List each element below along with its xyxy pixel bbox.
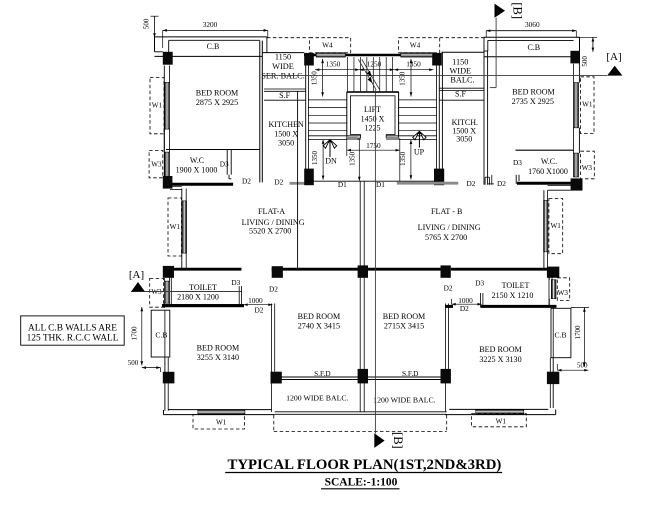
svg-text:2740 X 3415: 2740 X 3415: [298, 321, 340, 330]
svg-text:[B]: [B]: [391, 432, 405, 449]
svg-text:BED ROOM: BED ROOM: [298, 312, 341, 321]
svg-text:[A]: [A]: [129, 269, 144, 281]
svg-text:D2: D2: [460, 304, 469, 313]
svg-text:[A]: [A]: [606, 51, 621, 63]
svg-text:BED ROOM: BED ROOM: [479, 345, 522, 354]
svg-text:5765 X 2700: 5765 X 2700: [425, 233, 467, 242]
svg-text:500: 500: [581, 56, 589, 67]
svg-text:2735 X 2925: 2735 X 2925: [512, 97, 554, 106]
svg-text:DN: DN: [325, 156, 337, 165]
svg-text:BED ROOM: BED ROOM: [512, 88, 555, 97]
svg-text:W3: W3: [151, 288, 162, 296]
svg-text:3050: 3050: [456, 135, 472, 144]
svg-text:D3: D3: [513, 158, 522, 167]
svg-text:TYPICAL FLOOR PLAN(1ST,2ND&3RD: TYPICAL FLOOR PLAN(1ST,2ND&3RD): [227, 457, 501, 473]
svg-text:D2: D2: [254, 306, 263, 315]
svg-text:WIDE: WIDE: [272, 62, 294, 71]
svg-text:1350: 1350: [399, 151, 407, 166]
svg-text:BED ROOM: BED ROOM: [197, 343, 240, 352]
svg-text:W4: W4: [410, 41, 421, 50]
svg-text:3200: 3200: [203, 20, 218, 29]
svg-text:D2: D2: [444, 284, 453, 293]
svg-text:125 THK. R.C.C WALL: 125 THK. R.C.C WALL: [27, 333, 119, 343]
svg-text:1000: 1000: [248, 296, 263, 305]
svg-text:D3: D3: [220, 159, 229, 168]
svg-text:W.C.: W.C.: [541, 157, 557, 166]
svg-text:C.B: C.B: [554, 330, 566, 339]
svg-text:BED ROOM: BED ROOM: [383, 312, 426, 321]
svg-text:LIVING / DINING: LIVING / DINING: [242, 218, 305, 227]
svg-text:W3: W3: [558, 289, 569, 297]
svg-text:500: 500: [128, 359, 139, 367]
svg-text:W3: W3: [151, 161, 162, 169]
svg-text:W1: W1: [582, 101, 593, 109]
svg-text:W1: W1: [152, 102, 163, 110]
svg-text:1150: 1150: [452, 57, 468, 66]
svg-text:S.F.D: S.F.D: [402, 369, 418, 378]
svg-text:KITCHEN: KITCHEN: [269, 120, 304, 129]
svg-text:LIVING / DINING: LIVING / DINING: [418, 223, 481, 232]
svg-text:WIDE: WIDE: [449, 66, 471, 75]
svg-text:1150: 1150: [275, 53, 291, 62]
svg-text:SCALE:-1:100: SCALE:-1:100: [325, 476, 398, 488]
svg-text:W4: W4: [322, 41, 333, 50]
svg-text:2150 X 1210: 2150 X 1210: [492, 291, 534, 300]
svg-text:1900 X 1000: 1900 X 1000: [176, 166, 218, 175]
svg-text:1350: 1350: [406, 59, 421, 68]
svg-text:W.C: W.C: [190, 156, 204, 165]
svg-text:LIFT: LIFT: [364, 105, 381, 114]
svg-text:S.F.D: S.F.D: [314, 369, 330, 378]
svg-text:1200 WIDE BALC.: 1200 WIDE BALC.: [373, 395, 435, 404]
svg-text:D3: D3: [475, 279, 484, 288]
svg-text:D2: D2: [269, 284, 278, 293]
svg-text:3050: 3050: [278, 138, 294, 147]
svg-text:TOILET: TOILET: [189, 283, 217, 292]
svg-text:C.B: C.B: [155, 330, 167, 339]
svg-text:D2: D2: [242, 177, 251, 186]
svg-text:3255 X 3140: 3255 X 3140: [197, 353, 239, 362]
svg-text:D1: D1: [338, 180, 347, 189]
svg-text:5520 X 2700: 5520 X 2700: [249, 227, 291, 236]
svg-text:1200 WIDE BALC.: 1200 WIDE BALC.: [286, 394, 348, 403]
svg-text:1350: 1350: [326, 59, 341, 68]
svg-text:1500 X: 1500 X: [274, 129, 298, 138]
svg-text:FLAT - B: FLAT - B: [431, 207, 462, 216]
svg-text:1350: 1350: [399, 71, 407, 86]
svg-text:D2: D2: [274, 178, 283, 187]
svg-text:UP: UP: [414, 148, 425, 157]
svg-text:C.B: C.B: [527, 43, 540, 52]
svg-text:1225: 1225: [365, 124, 381, 133]
svg-text:D2: D2: [467, 179, 476, 188]
svg-text:W3: W3: [582, 164, 593, 172]
svg-text:BED ROOM: BED ROOM: [196, 89, 239, 98]
svg-text:3060: 3060: [525, 20, 540, 29]
svg-text:1760 X1000: 1760 X1000: [528, 167, 568, 176]
svg-text:W1: W1: [216, 419, 227, 427]
svg-text:1700: 1700: [131, 326, 139, 341]
svg-text:W1: W1: [170, 223, 181, 231]
svg-text:1700: 1700: [574, 325, 582, 340]
svg-text:1350: 1350: [311, 71, 319, 86]
svg-text:TOILET: TOILET: [502, 281, 530, 290]
svg-text:FLAT-A: FLAT-A: [258, 207, 285, 216]
svg-text:[B]: [B]: [511, 2, 525, 19]
svg-text:D1: D1: [376, 180, 385, 189]
svg-text:D3: D3: [231, 278, 240, 287]
svg-text:1450 X: 1450 X: [361, 114, 385, 123]
svg-text:BALC.: BALC.: [450, 76, 474, 85]
svg-text:D2: D2: [497, 179, 506, 188]
svg-text:1350: 1350: [348, 151, 356, 166]
svg-text:500: 500: [143, 18, 151, 29]
svg-text:C.B: C.B: [207, 42, 220, 51]
svg-text:2875 X 2925: 2875 X 2925: [196, 98, 238, 107]
svg-text:2715X 3415: 2715X 3415: [384, 321, 424, 330]
svg-text:3225 X 3130: 3225 X 3130: [479, 355, 521, 364]
svg-text:S.F: S.F: [455, 89, 466, 98]
svg-text:2180 X 1200: 2180 X 1200: [177, 292, 219, 301]
svg-text:1750: 1750: [366, 141, 381, 150]
svg-text:1350: 1350: [311, 151, 319, 166]
svg-text:W1: W1: [551, 222, 562, 230]
svg-text:S.F: S.F: [279, 91, 290, 100]
svg-text:500: 500: [577, 362, 588, 370]
svg-text:ALL C.B WALLS ARE: ALL C.B WALLS ARE: [28, 323, 117, 333]
svg-text:1250: 1250: [367, 59, 382, 68]
svg-text:W1: W1: [496, 417, 507, 425]
